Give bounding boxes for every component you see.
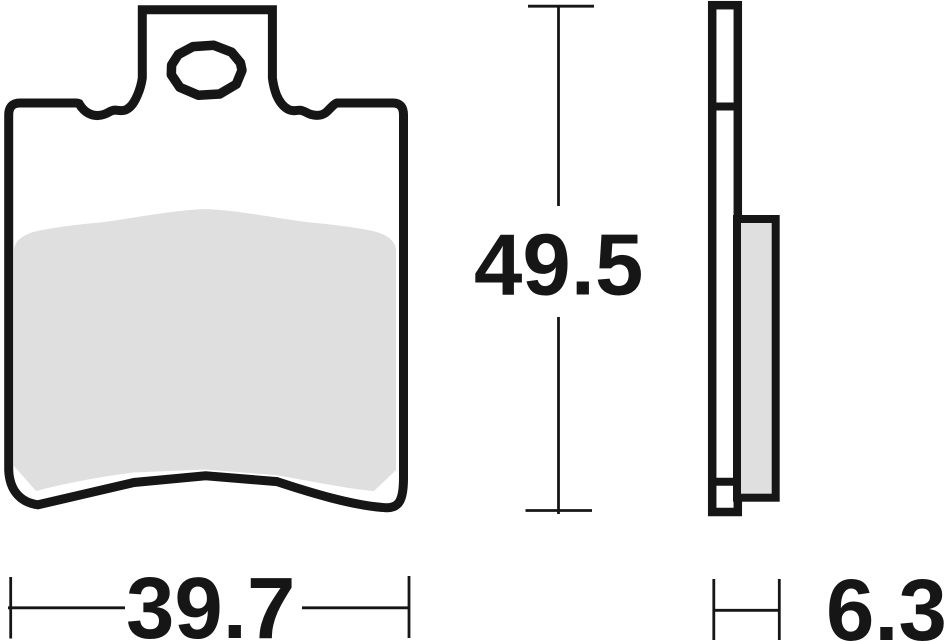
svg-text:49.5: 49.5: [474, 217, 643, 314]
svg-text:6.3: 6.3: [826, 562, 945, 641]
svg-text:39.7: 39.7: [126, 560, 295, 641]
